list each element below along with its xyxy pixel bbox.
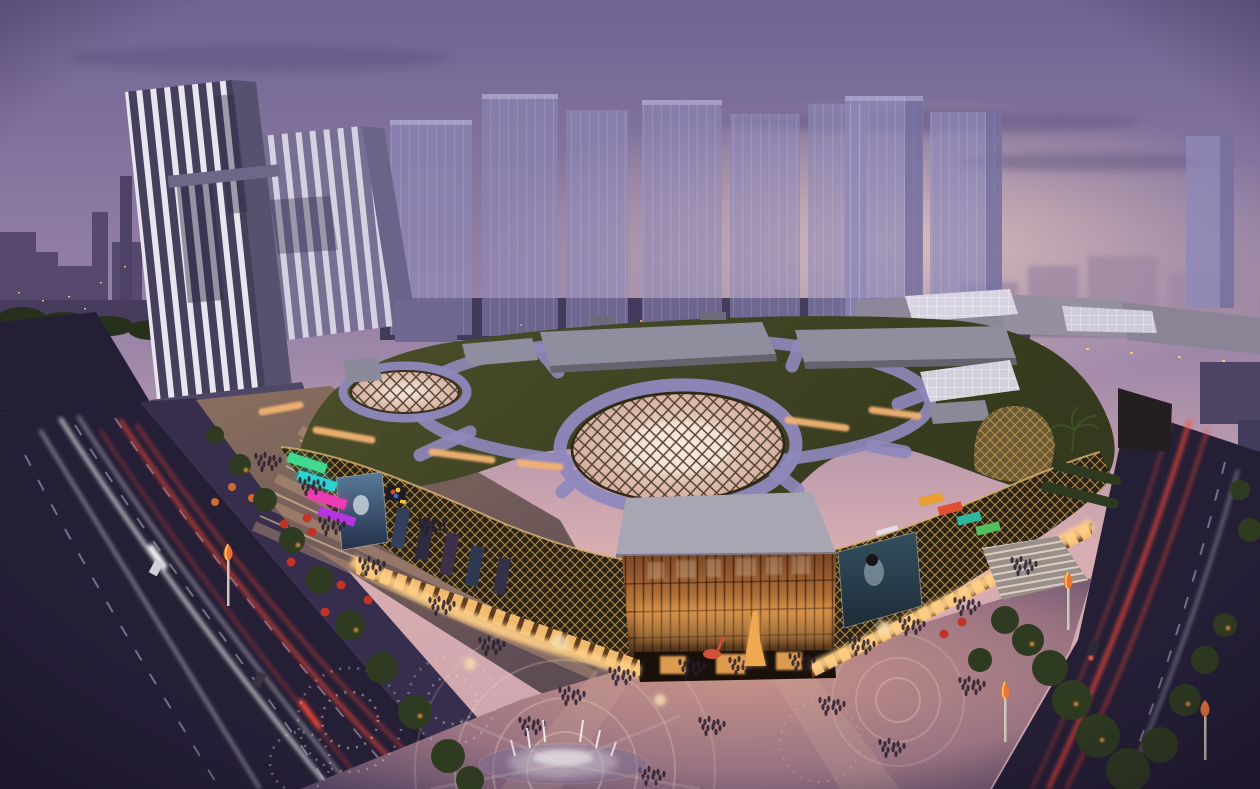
vignette-overlay [0,0,1260,789]
scene-svg [0,0,1260,789]
rendering-canvas [0,0,1260,789]
